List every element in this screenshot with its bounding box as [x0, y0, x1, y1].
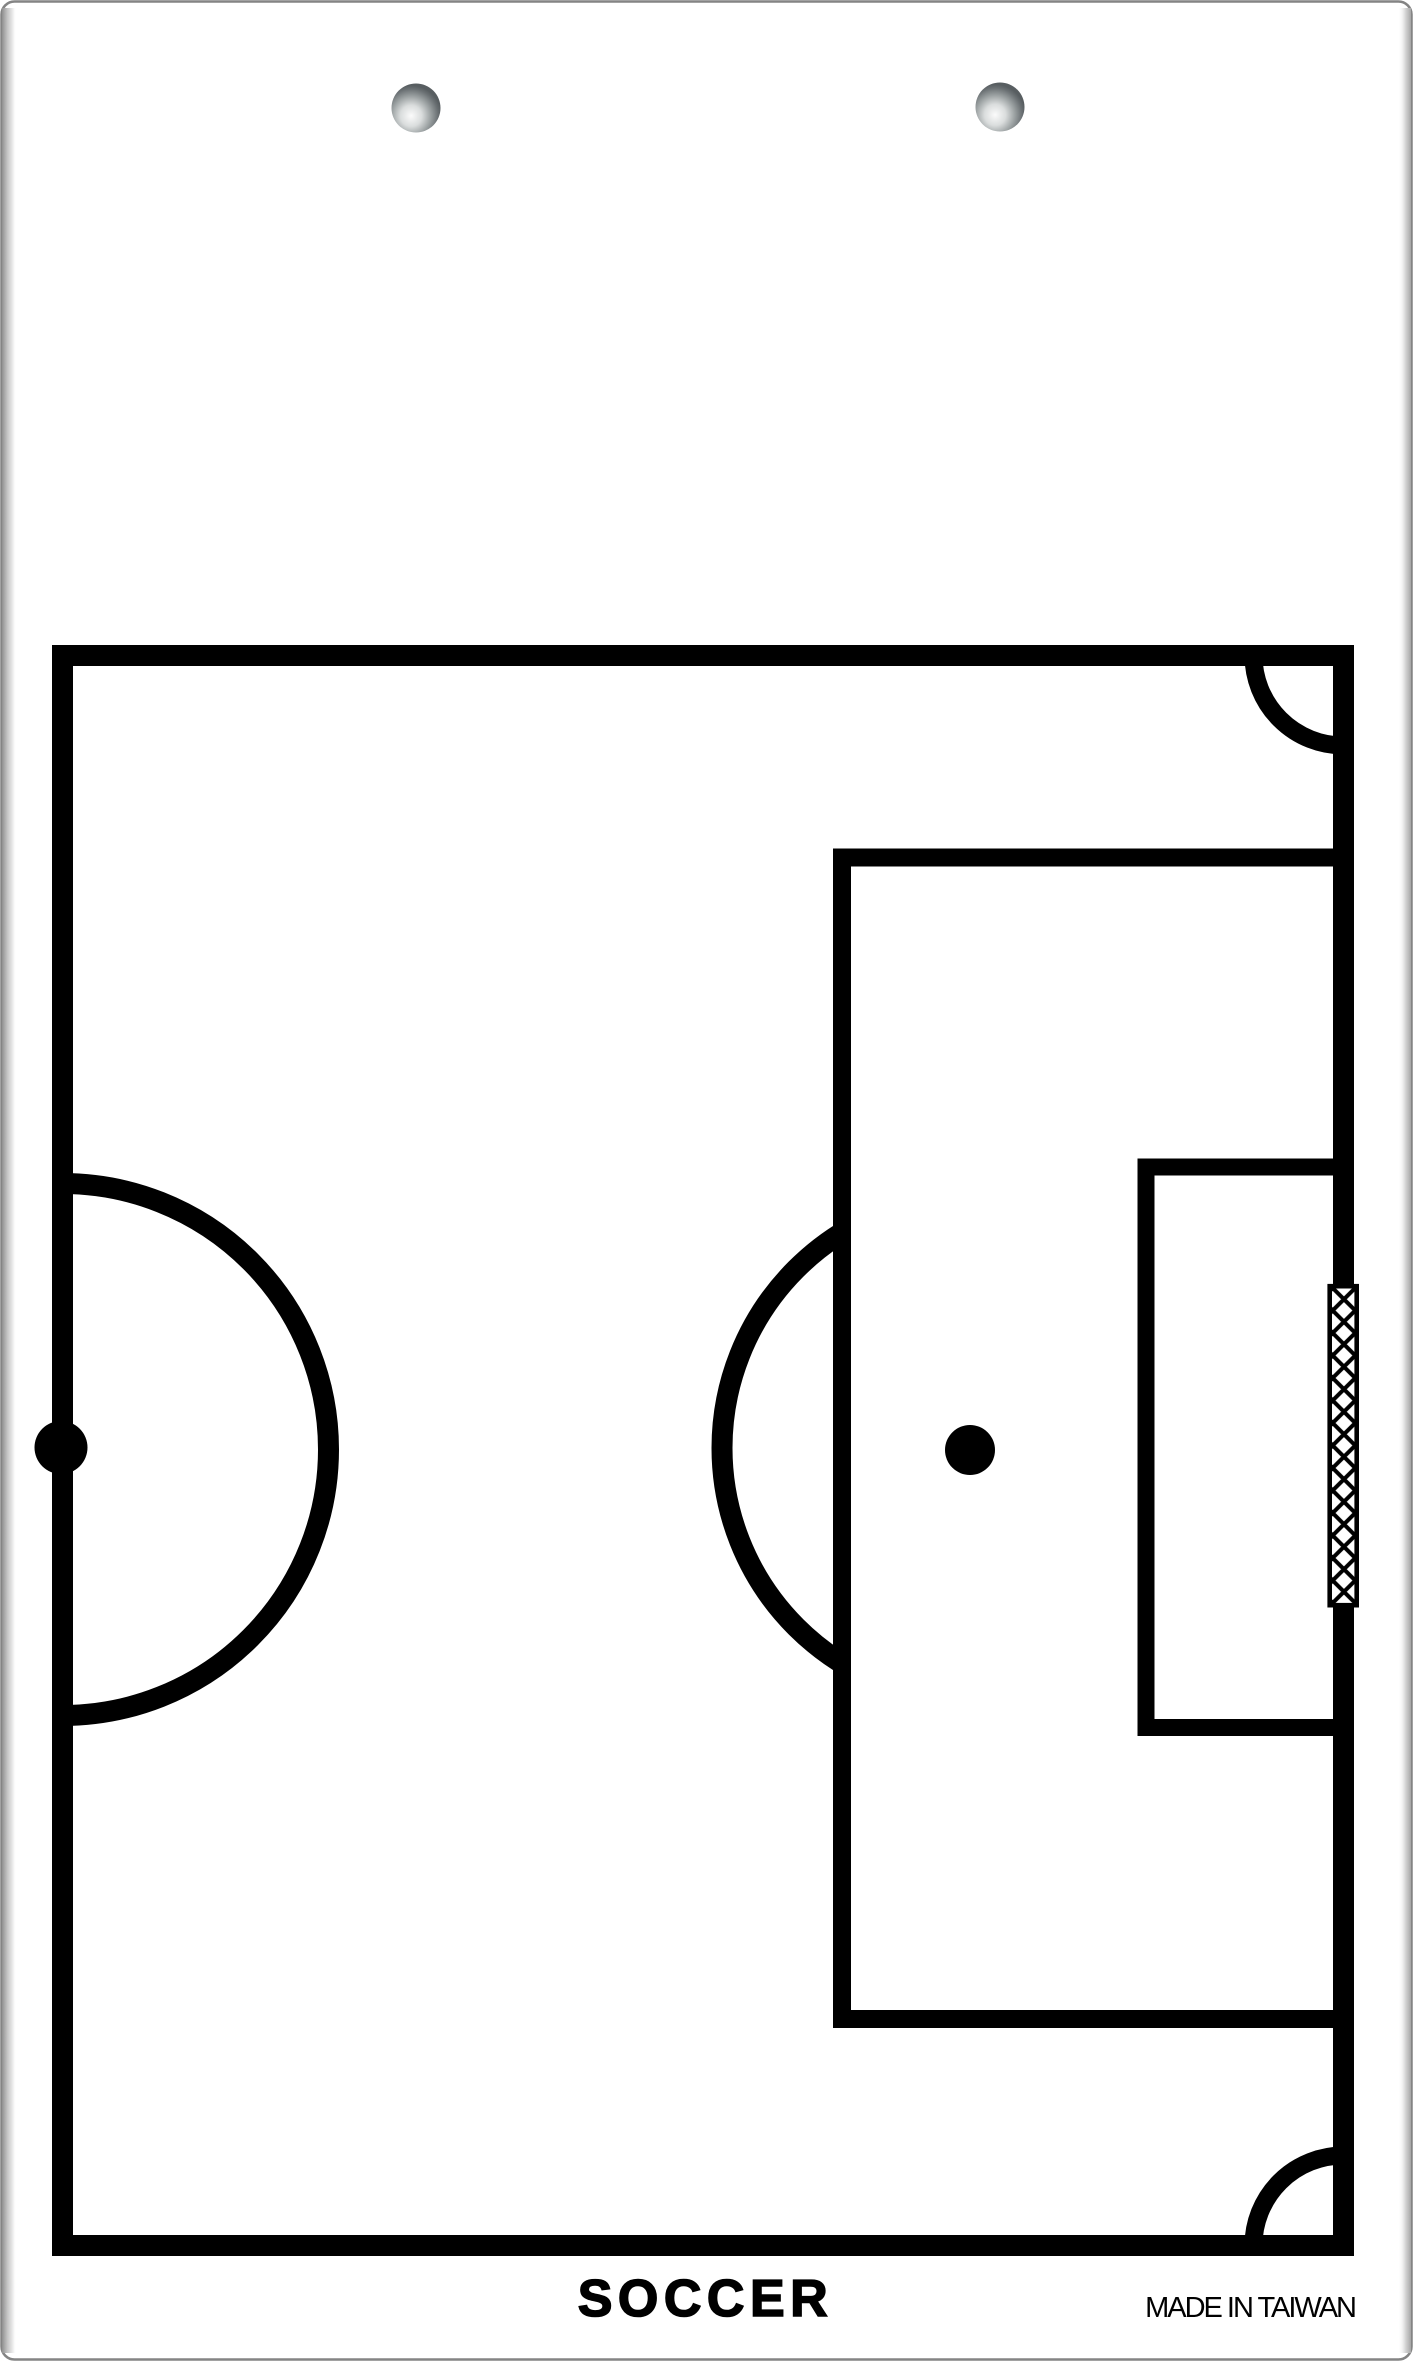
- svg-text:MADE IN TAIWAN: MADE IN TAIWAN: [1145, 2292, 1355, 2324]
- svg-text:SOCCER: SOCCER: [578, 2270, 833, 2328]
